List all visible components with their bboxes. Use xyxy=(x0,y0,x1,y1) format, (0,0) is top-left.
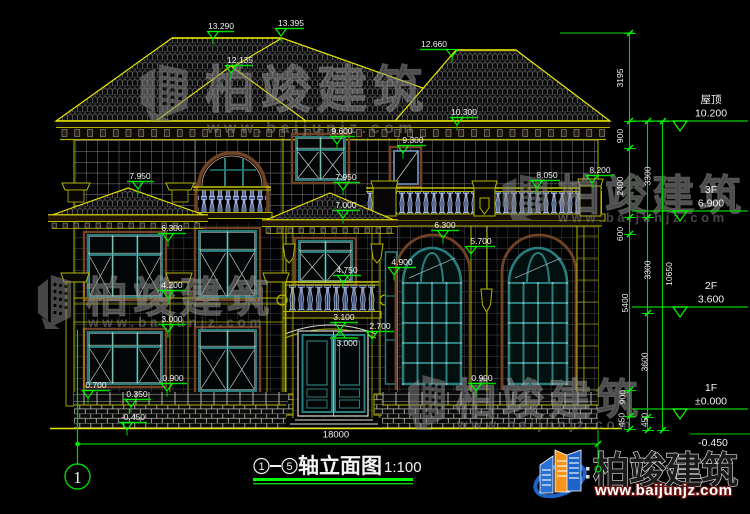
svg-text:-0.450: -0.450 xyxy=(698,437,728,449)
svg-text:5: 5 xyxy=(286,461,292,473)
svg-text:4.200: 4.200 xyxy=(161,280,183,290)
svg-text:3300: 3300 xyxy=(643,166,653,185)
svg-text:1:100: 1:100 xyxy=(384,459,422,476)
svg-text:-0.450: -0.450 xyxy=(121,412,145,422)
svg-text:2400: 2400 xyxy=(615,176,625,195)
svg-text:1: 1 xyxy=(73,468,82,487)
svg-text:6.900: 6.900 xyxy=(698,198,724,210)
svg-text:3F: 3F xyxy=(705,184,717,196)
svg-text:450: 450 xyxy=(640,413,650,427)
svg-text:9.600: 9.600 xyxy=(331,126,353,136)
svg-text:18000: 18000 xyxy=(323,429,349,440)
svg-text:13.290: 13.290 xyxy=(208,21,234,31)
svg-text:8.200: 8.200 xyxy=(589,165,611,175)
svg-text:10.300: 10.300 xyxy=(451,107,477,117)
svg-text:3.000: 3.000 xyxy=(161,314,183,324)
svg-text:www.baijunjz.com: www.baijunjz.com xyxy=(594,482,732,499)
svg-text:轴立面图: 轴立面图 xyxy=(298,454,382,478)
svg-text:5400: 5400 xyxy=(620,293,630,312)
svg-text:12.660: 12.660 xyxy=(421,39,447,49)
svg-text:2.700: 2.700 xyxy=(369,321,391,331)
svg-text:1F: 1F xyxy=(705,382,717,394)
svg-text:±0.000: ±0.000 xyxy=(695,396,727,408)
svg-text:屋顶: 屋顶 xyxy=(701,94,722,106)
svg-text:3.100: 3.100 xyxy=(333,312,355,322)
svg-text:3300: 3300 xyxy=(643,260,653,279)
svg-text:10.200: 10.200 xyxy=(695,108,727,120)
svg-text:6.300: 6.300 xyxy=(434,220,456,230)
svg-text:3195: 3195 xyxy=(615,68,625,87)
svg-text:7.000: 7.000 xyxy=(335,200,357,210)
svg-text:3600: 3600 xyxy=(640,352,650,371)
svg-text:7.950: 7.950 xyxy=(129,171,151,181)
svg-text:www.baijunjz.com: www.baijunjz.com xyxy=(206,120,417,137)
svg-text:900: 900 xyxy=(618,390,628,404)
svg-text:3.000: 3.000 xyxy=(336,338,358,348)
svg-text:1: 1 xyxy=(258,461,264,473)
svg-text:7.950: 7.950 xyxy=(335,172,357,182)
svg-text:9.300: 9.300 xyxy=(402,135,424,145)
svg-text:13.395: 13.395 xyxy=(278,18,304,28)
svg-text:12.135: 12.135 xyxy=(227,55,253,65)
svg-text:900: 900 xyxy=(615,129,625,143)
svg-text:0.700: 0.700 xyxy=(85,380,107,390)
svg-text:2F: 2F xyxy=(705,280,717,292)
svg-text:4.900: 4.900 xyxy=(391,257,413,267)
svg-text:450: 450 xyxy=(617,413,627,427)
svg-text:10650: 10650 xyxy=(664,262,674,286)
svg-text:5.700: 5.700 xyxy=(470,236,492,246)
svg-text:柏竣建筑: 柏竣建筑 xyxy=(205,62,429,118)
svg-text:0.900: 0.900 xyxy=(162,373,184,383)
svg-text:4.750: 4.750 xyxy=(336,265,358,275)
svg-text:8.050: 8.050 xyxy=(536,170,558,180)
svg-text:0.900: 0.900 xyxy=(471,373,493,383)
svg-text:600: 600 xyxy=(615,227,625,241)
svg-text:0.350: 0.350 xyxy=(126,389,148,399)
svg-text:6.300: 6.300 xyxy=(161,223,183,233)
svg-text:3.600: 3.600 xyxy=(698,294,724,306)
svg-text:www.baijunjz.com: www.baijunjz.com xyxy=(456,417,634,432)
